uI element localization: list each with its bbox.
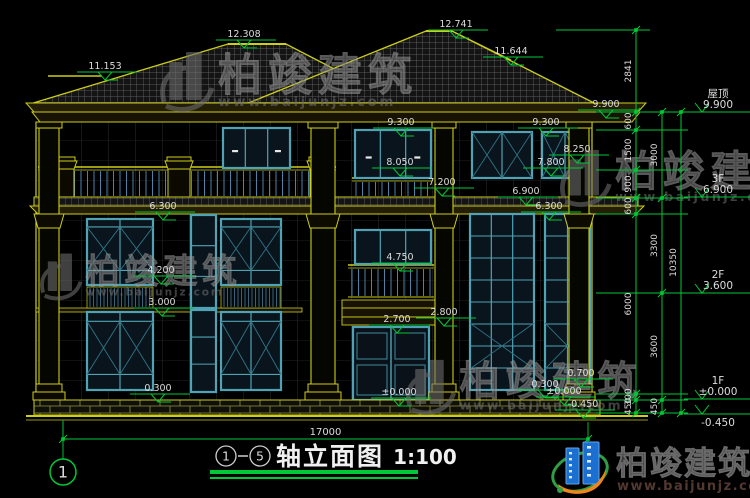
level-value: 7.200	[428, 177, 455, 188]
pilaster-top-band	[566, 122, 592, 128]
level-value: 2.800	[430, 307, 457, 318]
poly	[165, 161, 193, 169]
window-frame	[191, 310, 216, 392]
dim-chain-label: 450	[650, 398, 660, 415]
poly	[564, 214, 594, 228]
footer-brand-block: 柏竣建筑www.baijunjz.com	[548, 442, 750, 498]
footer-brand-logo	[548, 442, 612, 498]
dim-chain-label: 1500	[624, 138, 634, 161]
level-value: 11.644	[494, 46, 527, 57]
poly	[34, 214, 64, 228]
floor-value: 9.900	[703, 99, 733, 111]
pilaster-top-band	[308, 122, 338, 128]
title-underline-thin	[210, 477, 418, 479]
dim-chain-label: 600	[624, 112, 634, 129]
window-handle	[366, 156, 372, 158]
footer-logo-window	[587, 474, 591, 477]
level-value: -0.450	[568, 399, 599, 410]
title-bubble-from-label: 1	[222, 449, 230, 464]
level-value: 8.050	[386, 157, 413, 168]
dim-chain-label: 3000	[650, 143, 660, 166]
window-handle	[414, 156, 420, 158]
level-value: 9.300	[387, 117, 414, 128]
railing-post	[165, 157, 193, 198]
dim-chain-label: 3300	[650, 234, 660, 257]
footer-logo-window	[569, 464, 572, 466]
level-value: 2.700	[383, 314, 410, 325]
floor-mark: 屋顶9.900	[684, 88, 750, 112]
level-value: 0.700	[567, 368, 594, 379]
title-scale: 1:100	[393, 445, 457, 469]
watermark-url-text: www.baijunjz.com	[218, 94, 396, 110]
title-underline-thick	[210, 470, 418, 474]
title-bubble-to-label: 5	[256, 449, 264, 464]
pilaster-plinth	[305, 392, 341, 400]
watermark: 柏竣建筑www.baijunjz.com	[42, 252, 241, 298]
footer-logo-tower	[566, 448, 579, 484]
window-frame	[223, 128, 290, 168]
bottom-dim-value: 17000	[310, 427, 342, 438]
floor-mark: -0.450	[684, 405, 750, 429]
footer-logo-window	[587, 453, 591, 456]
footer-logo-window	[569, 470, 572, 472]
pilaster-shaft	[435, 128, 453, 400]
title-block: 15轴立面图1:100	[210, 442, 457, 479]
dim-chain-label: 10350	[669, 248, 679, 277]
cad-elevation-canvas: 柏竣建筑www.baijunjz.com柏竣建筑www.baijunjz.com…	[0, 0, 750, 498]
drawing-title: 15轴立面图1:100	[210, 442, 457, 479]
level-value: 0.300	[144, 383, 171, 394]
level-value: 4.750	[386, 252, 413, 263]
pilaster-base	[308, 384, 338, 392]
footer-logo-dot	[557, 487, 563, 493]
level-value: 6.900	[512, 186, 539, 197]
footer-brand-url: www.baijunjz.com	[617, 479, 750, 494]
floor-mark: 2F3.600	[684, 269, 750, 293]
level-value: 6.300	[149, 201, 176, 212]
window-1f-left-narrow	[191, 310, 216, 392]
footer-logo-window	[587, 460, 591, 463]
level-value: 6.300	[535, 201, 562, 212]
level-value: 12.308	[227, 29, 260, 40]
level-value: 3.000	[148, 297, 175, 308]
level-value: 11.153	[88, 61, 121, 72]
level-value: 7.800	[537, 157, 564, 168]
level-value: ±0.000	[546, 386, 581, 397]
floor-value: -0.450	[701, 417, 735, 429]
window-3f-center	[355, 130, 431, 178]
window-1f-left-a	[87, 312, 153, 390]
footer-brand-text: 柏竣建筑	[616, 444, 750, 482]
window-handle	[232, 150, 238, 152]
window-handle	[275, 150, 281, 152]
pilaster-base	[36, 384, 62, 392]
dim-chain-label: 900	[624, 175, 634, 192]
footer-brand: 柏竣建筑www.baijunjz.com	[548, 442, 750, 498]
footer-logo-window	[587, 467, 591, 470]
pilaster-shaft	[311, 128, 335, 400]
footer-logo-window	[587, 446, 591, 449]
axis-bubble-label: 1	[58, 463, 68, 482]
floor-mark: 1F±0.000	[684, 375, 750, 399]
watermark: 柏竣建筑www.baijunjz.com	[163, 50, 418, 110]
window-3f-leftwing	[223, 128, 290, 168]
level-value: 9.300	[532, 117, 559, 128]
level-value: 9.900	[592, 99, 619, 110]
poly	[306, 214, 340, 228]
pilaster-plinth	[33, 392, 65, 400]
level-value: ±0.000	[381, 387, 416, 398]
window-3f-right	[472, 132, 532, 178]
floor-value: ±0.000	[699, 386, 738, 398]
level-value: 8.250	[563, 144, 590, 155]
poly	[430, 214, 458, 228]
floor-value: 6.900	[703, 184, 733, 196]
elevation-drawing: 柏竣建筑www.baijunjz.com柏竣建筑www.baijunjz.com…	[0, 0, 750, 498]
dim-chain-label: 6000	[624, 292, 634, 315]
level-value: 12.741	[439, 19, 472, 30]
level-triangle	[695, 405, 709, 414]
dim-chain-label: 450	[624, 398, 634, 415]
dim-chain-label: 2841	[624, 60, 634, 83]
window-1f-left-b	[221, 312, 281, 390]
footer-logo-window	[569, 452, 572, 454]
pilaster-top-band	[36, 122, 62, 128]
window-frame	[355, 130, 431, 178]
dim-chain-label: 600	[624, 197, 634, 214]
footer-logo-window	[569, 458, 572, 460]
title-text: 轴立面图	[276, 442, 384, 471]
floor-value: 3.600	[703, 280, 733, 292]
pilaster-top-band	[432, 122, 456, 128]
level-value: 4.200	[147, 265, 174, 276]
axis-bubble: 1	[50, 420, 76, 485]
footer-logo-window	[569, 476, 572, 478]
dim-chain-label: 3600	[650, 335, 660, 358]
